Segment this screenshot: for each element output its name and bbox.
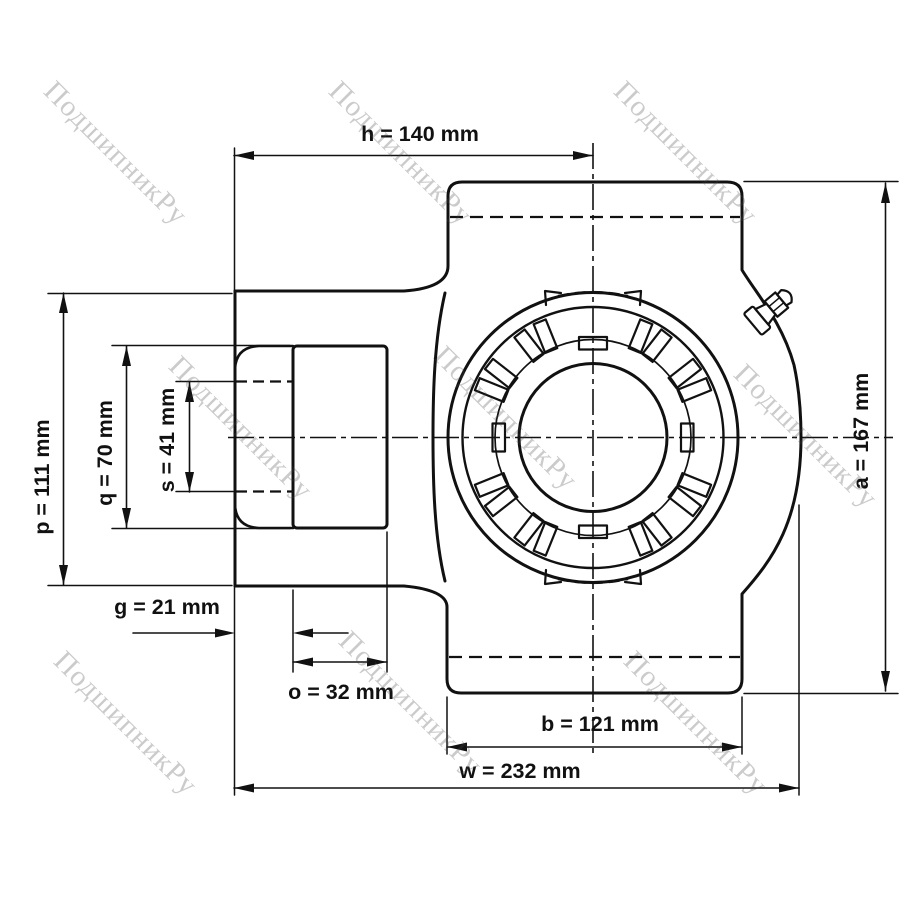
slot-corner-top: [235, 346, 293, 369]
centerlines: [228, 143, 893, 758]
dimension-b: b = 121 mm: [447, 712, 742, 752]
dimension-o-label: o = 32 mm: [288, 680, 394, 704]
dimension-g-label: g = 21 mm: [114, 595, 220, 619]
dimension-h: h = 140 mm: [234, 122, 593, 160]
bearing-unit-drawing: h = 140 mm a = 167 mm w = 232 mm b = 121…: [0, 0, 900, 900]
dimension-b-label: b = 121 mm: [541, 712, 659, 736]
slot-corner-bottom: [235, 505, 293, 528]
grease-fitting-icon: [744, 283, 799, 336]
dimension-q-label: q = 70 mm: [93, 400, 117, 506]
dimension-w-label: w = 232 mm: [458, 759, 580, 783]
dimension-a: a = 167 mm: [849, 183, 890, 691]
dimension-a-label: a = 167 mm: [849, 373, 873, 490]
dimension-o: o = 32 mm: [288, 658, 394, 705]
dimension-w: w = 232 mm: [234, 759, 799, 793]
technical-drawing-canvas: h = 140 mm a = 167 mm w = 232 mm b = 121…: [0, 0, 900, 900]
dimension-g: g = 21 mm: [114, 595, 348, 638]
dimension-p: p = 111 mm: [30, 293, 68, 585]
dimension-p-label: p = 111 mm: [30, 419, 54, 534]
dimension-s: s = 41 mm: [155, 382, 194, 492]
dimension-h-label: h = 140 mm: [361, 122, 479, 146]
dimension-q: q = 70 mm: [93, 346, 131, 528]
dimension-s-label: s = 41 mm: [155, 388, 179, 493]
